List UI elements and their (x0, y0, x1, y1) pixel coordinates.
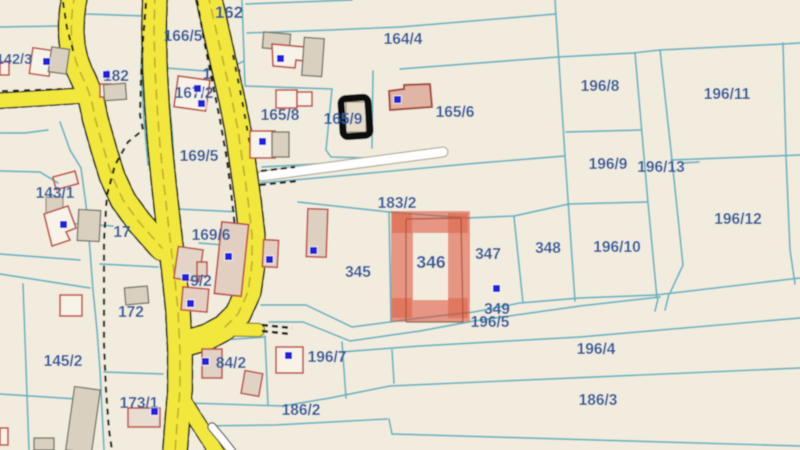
svg-text:347: 347 (475, 246, 501, 263)
svg-text:186/3: 186/3 (579, 392, 618, 409)
svg-text:196/4: 196/4 (577, 341, 616, 358)
svg-text:9/2: 9/2 (190, 273, 212, 290)
svg-text:348: 348 (535, 240, 561, 257)
svg-text:169/6: 169/6 (192, 227, 231, 244)
svg-text:346: 346 (416, 252, 445, 272)
svg-text:172: 172 (118, 304, 144, 321)
svg-text:196/8: 196/8 (581, 78, 620, 95)
svg-text:169/5: 169/5 (180, 148, 219, 165)
svg-text:145/2: 145/2 (44, 353, 83, 370)
svg-text:183/2: 183/2 (378, 195, 417, 212)
svg-text:84/2: 84/2 (216, 355, 246, 372)
svg-text:17: 17 (113, 224, 130, 241)
svg-text:165/6: 165/6 (436, 104, 475, 121)
svg-text:345: 345 (345, 264, 371, 281)
svg-text:196/7: 196/7 (308, 349, 347, 366)
svg-text:196/5: 196/5 (471, 314, 510, 331)
svg-text:196/11: 196/11 (704, 86, 751, 103)
svg-text:196/13: 196/13 (637, 159, 685, 176)
svg-text:186/2: 186/2 (282, 402, 321, 419)
svg-text:196/12: 196/12 (714, 211, 761, 228)
svg-text:142/3: 142/3 (0, 52, 32, 68)
svg-text:165/8: 165/8 (261, 107, 300, 124)
svg-text:196/10: 196/10 (593, 239, 640, 256)
svg-text:165/9: 165/9 (324, 111, 363, 128)
svg-text:162: 162 (215, 3, 243, 22)
svg-text:166/5: 166/5 (164, 28, 203, 45)
svg-text:196/9: 196/9 (589, 156, 628, 173)
svg-text:143/1: 143/1 (36, 185, 75, 202)
svg-text:164/4: 164/4 (384, 31, 423, 48)
